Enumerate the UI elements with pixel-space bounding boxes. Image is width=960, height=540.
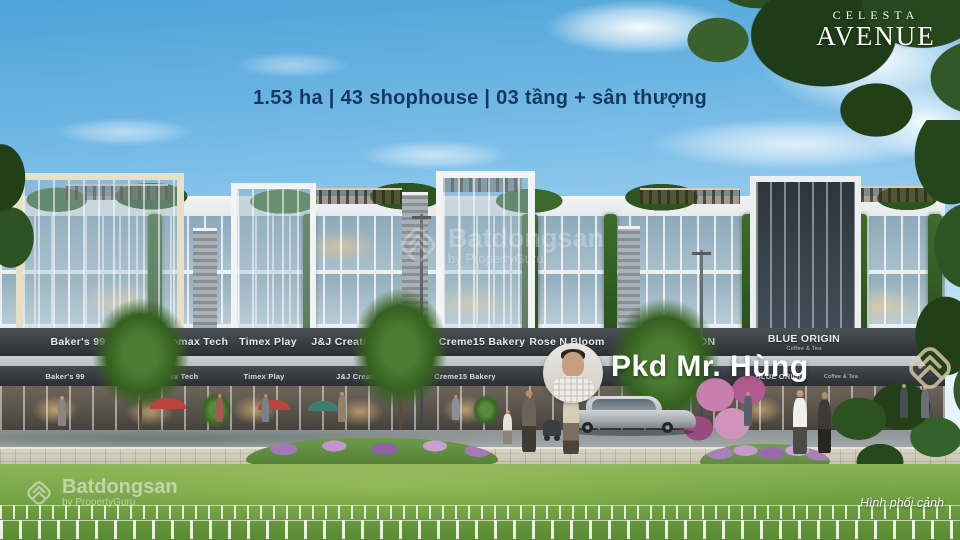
car-wheel bbox=[582, 422, 593, 433]
shop-sign-label: Creme15 Bakery bbox=[439, 336, 526, 348]
cloud bbox=[360, 140, 510, 170]
street-tree bbox=[92, 298, 190, 410]
shop-sign: Baker's 99 bbox=[28, 366, 102, 386]
mini-fence bbox=[0, 520, 960, 539]
agent-name: Pkd Mr. Hùng bbox=[611, 350, 809, 384]
watermark-byline: by PropertyGuru bbox=[62, 498, 178, 509]
project-logo: CELESTA AVENUE bbox=[806, 8, 946, 52]
cafe-umbrella bbox=[308, 401, 338, 411]
person bbox=[744, 396, 752, 426]
project-headline: 1.53 ha | 43 shophouse | 03 tầng + sân t… bbox=[0, 87, 960, 110]
cafe-umbrella bbox=[150, 398, 186, 409]
watermark-center: Batdongsan by PropertyGuru bbox=[396, 223, 604, 267]
shop-sign-label: BLUE ORIGIN bbox=[768, 333, 840, 345]
logo-line2: AVENUE bbox=[806, 21, 946, 52]
person bbox=[522, 398, 536, 452]
stroller bbox=[543, 420, 561, 436]
person bbox=[338, 396, 346, 422]
shop-sign: Creme15 Bakery bbox=[438, 328, 526, 356]
edge-tree bbox=[0, 140, 40, 290]
shop-sign: Timex Play bbox=[228, 328, 308, 356]
rooftop-pergola bbox=[310, 188, 402, 204]
avatar-face bbox=[562, 352, 584, 377]
person bbox=[216, 398, 223, 422]
watermark-brand: Batdongsan bbox=[62, 477, 178, 498]
shop-sign: Timex Play bbox=[222, 366, 306, 386]
car-wheel bbox=[662, 422, 673, 433]
shop-sign-label: Timex Play bbox=[239, 336, 297, 348]
cloud bbox=[55, 118, 195, 146]
batdongsan-house-icon bbox=[24, 478, 54, 508]
rooftop-pergola bbox=[640, 188, 740, 204]
watermark-brand: Batdongsan bbox=[448, 224, 604, 252]
avatar-shirt bbox=[552, 376, 594, 403]
agent-avatar bbox=[543, 343, 603, 403]
render-scene: Baker's 99 Promax Tech Timex Play J&J Cr… bbox=[0, 0, 960, 540]
shop-sign-label: Baker's 99 bbox=[45, 372, 84, 381]
person bbox=[262, 398, 269, 422]
person bbox=[793, 398, 807, 454]
batdongsan-house-icon bbox=[903, 341, 957, 395]
shrub bbox=[472, 394, 500, 426]
batdongsan-house-icon bbox=[396, 223, 440, 267]
watermark-bottom-left: Batdongsan by PropertyGuru bbox=[24, 477, 178, 509]
green-wall bbox=[604, 214, 617, 332]
watermark-byline: by PropertyGuru bbox=[448, 252, 604, 266]
shop-sign-label: Timex Play bbox=[243, 372, 284, 381]
cloud bbox=[235, 52, 350, 78]
person bbox=[818, 400, 831, 453]
person bbox=[452, 398, 459, 420]
render-caption: Hình phối cảnh bbox=[860, 496, 944, 510]
person bbox=[58, 400, 66, 426]
person bbox=[503, 414, 512, 444]
street-tree bbox=[352, 288, 448, 410]
